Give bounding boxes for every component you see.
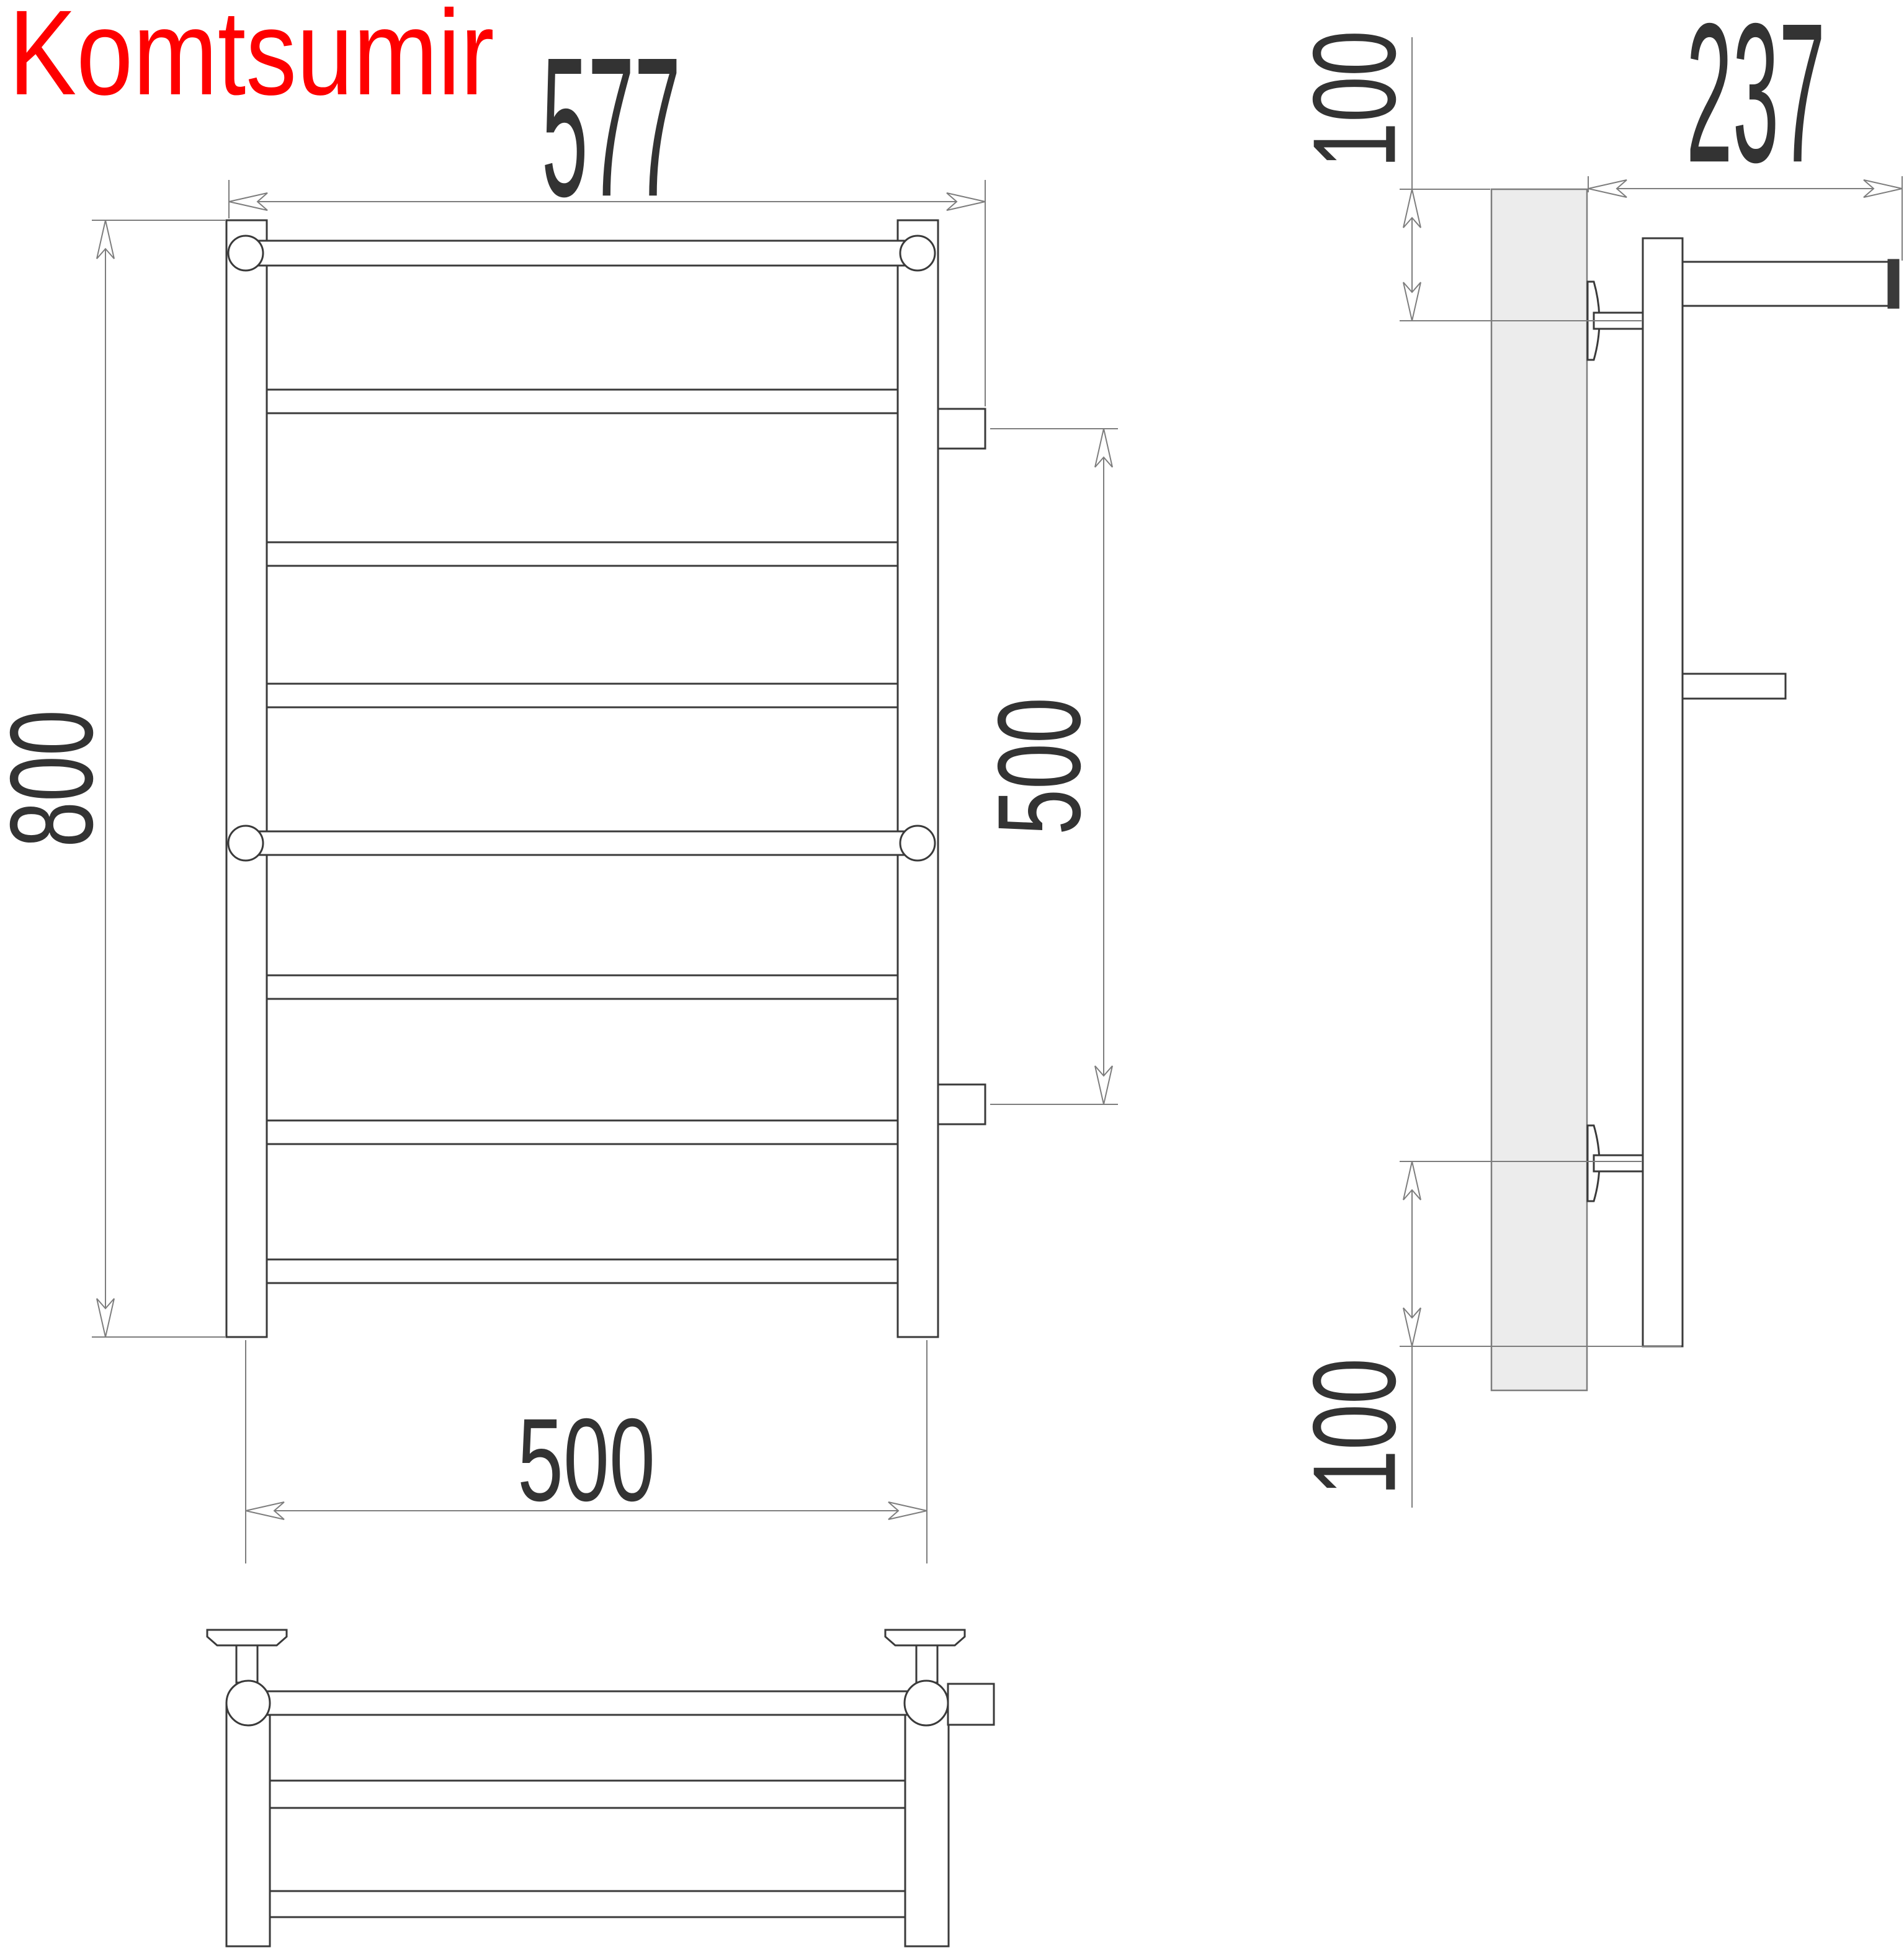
upper-pipe-fitting <box>938 409 985 449</box>
dimension-front-height-800: 800 <box>0 220 225 1337</box>
front-rung <box>267 390 898 413</box>
plan-joint-right <box>905 1681 948 1725</box>
dimension-bottom-width-500: 500 <box>246 1340 927 1563</box>
rail-joint <box>228 826 263 861</box>
side-post-profile <box>1643 238 1683 1346</box>
dimension-value: 800 <box>0 710 117 848</box>
dimension-value: 100 <box>1289 30 1420 168</box>
plan-right-post <box>905 1703 949 1946</box>
plan-joint-left <box>226 1681 270 1725</box>
dimension-depth-237: 237 <box>1588 0 1902 261</box>
wall-section <box>1491 189 1587 1390</box>
front-rung <box>267 1259 898 1283</box>
front-rung <box>267 975 898 999</box>
plan-view <box>207 1630 994 1946</box>
front-rung <box>267 684 898 707</box>
dimension-bottom-offset-100: 100 <box>1289 1161 1681 1508</box>
rail-joint <box>228 236 263 271</box>
dimension-top-offset-100: 100 <box>1289 30 1642 321</box>
mount-plate-right <box>885 1630 965 1645</box>
plan-left-post <box>226 1703 270 1946</box>
brand-text: Komtsumir <box>9 0 494 120</box>
front-left-post <box>226 220 267 1337</box>
dimension-value: 237 <box>1686 0 1825 204</box>
fastener-rod-bottom <box>1594 1155 1643 1171</box>
mount-stem-left <box>236 1645 257 1683</box>
dimension-pipe-spacing-500: 500 <box>973 429 1118 1104</box>
side-view <box>1491 189 1898 1390</box>
mount-stem-right <box>916 1645 937 1683</box>
dimension-value: 577 <box>542 17 681 238</box>
rail-joint <box>900 236 935 271</box>
front-middle-rail <box>246 831 918 855</box>
dimension-value: 500 <box>973 697 1105 835</box>
brand-logo: Komtsumir <box>9 0 494 120</box>
drawing-page: Komtsumir 577 <box>0 0 1904 1950</box>
front-view <box>226 220 985 1337</box>
plan-collector-tube <box>248 1691 926 1715</box>
front-rung <box>267 1120 898 1144</box>
front-right-post <box>898 220 938 1337</box>
side-middle-rail <box>1683 674 1786 699</box>
plan-rung <box>270 1781 905 1808</box>
tube-end-cap <box>1888 260 1898 308</box>
dimension-value: 500 <box>517 1394 655 1526</box>
towel-rail-technical-drawing: Komtsumir 577 <box>0 0 1904 1950</box>
front-rung <box>267 542 898 566</box>
plan-pipe-fitting <box>948 1684 994 1725</box>
side-top-tube <box>1683 262 1888 306</box>
front-top-rail <box>246 241 918 266</box>
plan-front-rung <box>270 1891 905 1917</box>
mount-plate-left <box>207 1630 287 1645</box>
rail-joint <box>900 826 935 861</box>
lower-pipe-fitting <box>938 1085 985 1124</box>
dimension-value: 100 <box>1289 1358 1420 1496</box>
